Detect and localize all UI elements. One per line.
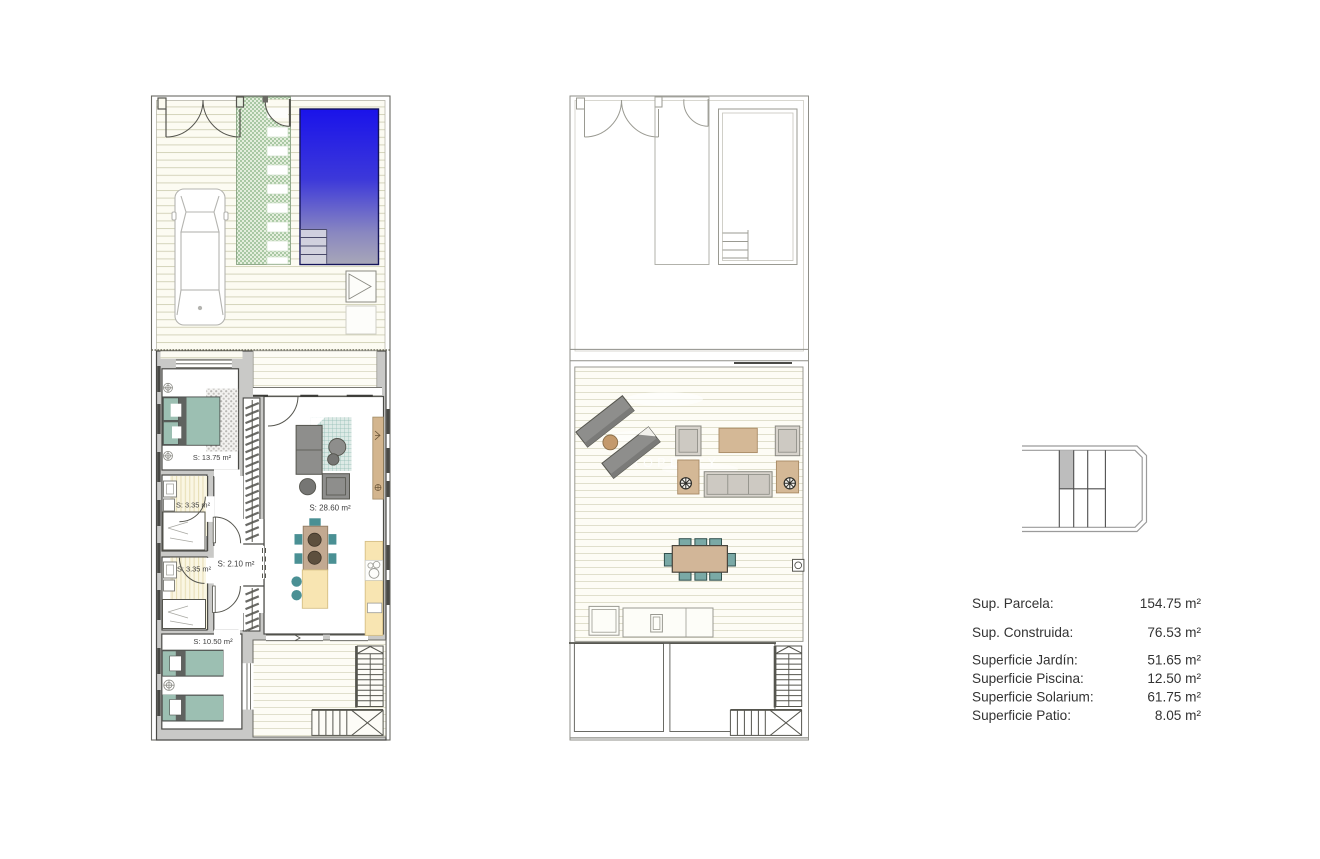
svg-text:Sup. Construida:: Sup. Construida: — [972, 625, 1073, 640]
svg-text:154.75 m²: 154.75 m² — [1140, 596, 1202, 611]
svg-text:76.53 m²: 76.53 m² — [1147, 625, 1201, 640]
svg-text:Superficie Patio:: Superficie Patio: — [972, 708, 1071, 723]
svg-text:8.05 m²: 8.05 m² — [1155, 708, 1202, 723]
svg-text:Superficie Piscina:: Superficie Piscina: — [972, 671, 1084, 686]
svg-text:S: 3.35 m²: S: 3.35 m² — [177, 565, 212, 574]
svg-text:S: 28.60 m²: S: 28.60 m² — [309, 504, 351, 513]
svg-text:S: 2.10 m²: S: 2.10 m² — [218, 560, 255, 569]
svg-text:Sup. Parcela:: Sup. Parcela: — [972, 596, 1054, 611]
svg-text:61.75 m²: 61.75 m² — [1147, 690, 1201, 705]
svg-text:S: 3.35 m²: S: 3.35 m² — [176, 501, 211, 510]
svg-text:Superficie Solarium:: Superficie Solarium: — [972, 690, 1094, 705]
svg-text:Superficie Jardín:: Superficie Jardín: — [972, 653, 1078, 668]
svg-text:S: 10.50 m²: S: 10.50 m² — [193, 637, 233, 646]
svg-text:51.65 m²: 51.65 m² — [1147, 653, 1201, 668]
svg-text:S: 13.75 m²: S: 13.75 m² — [193, 453, 232, 462]
svg-text:12.50 m²: 12.50 m² — [1147, 671, 1201, 686]
